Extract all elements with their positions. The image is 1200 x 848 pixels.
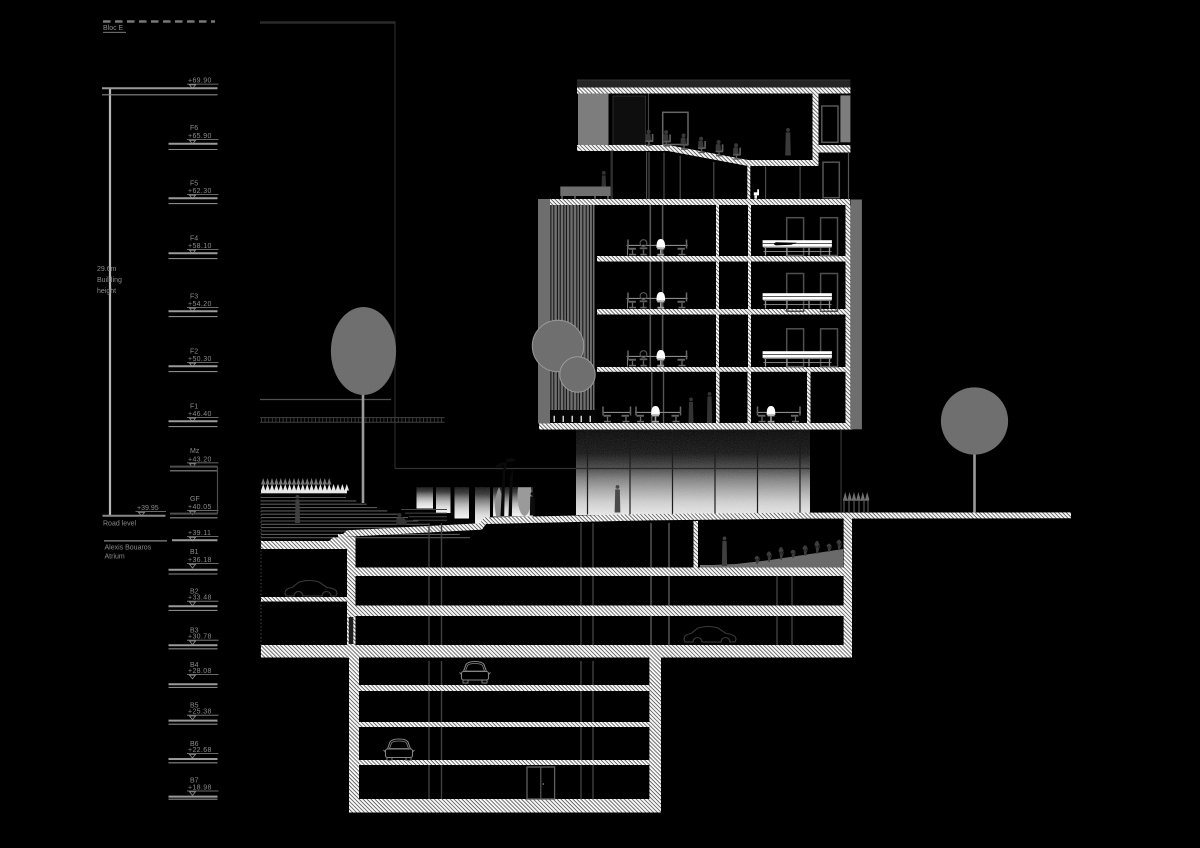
- svg-text:Alexis Bouaros: Alexis Bouaros: [105, 545, 152, 552]
- svg-text:F3: F3: [190, 293, 198, 300]
- svg-text:+46.40: +46.40: [188, 411, 212, 418]
- svg-text:Atrium: Atrium: [105, 554, 125, 561]
- svg-text:F1: F1: [190, 403, 198, 410]
- svg-text:+25.38: +25.38: [188, 709, 212, 716]
- svg-text:+40.05: +40.05: [188, 504, 212, 511]
- svg-text:+39.95: +39.95: [137, 505, 159, 512]
- svg-text:+62.30: +62.30: [188, 188, 212, 195]
- svg-text:GF: GF: [190, 496, 200, 503]
- svg-text:B1: B1: [190, 549, 199, 556]
- svg-text:F5: F5: [190, 180, 198, 187]
- svg-text:+36.18: +36.18: [188, 557, 212, 564]
- svg-text:+22.68: +22.68: [188, 747, 212, 754]
- svg-text:29.6m: 29.6m: [97, 266, 117, 273]
- svg-text:+58.10: +58.10: [188, 243, 212, 250]
- svg-text:+65.90: +65.90: [188, 133, 212, 140]
- svg-text:+54.20: +54.20: [188, 301, 212, 308]
- svg-text:Building: Building: [97, 277, 122, 284]
- svg-text:+30.78: +30.78: [188, 634, 212, 641]
- svg-text:Road level: Road level: [103, 521, 137, 528]
- svg-text:F4: F4: [190, 235, 198, 242]
- svg-text:Mz: Mz: [190, 448, 200, 455]
- svg-text:+43.20: +43.20: [188, 456, 212, 463]
- svg-text:+39.11: +39.11: [188, 530, 211, 537]
- svg-text:height: height: [97, 288, 116, 295]
- svg-text:+28.08: +28.08: [188, 668, 212, 675]
- svg-text:+33.48: +33.48: [188, 595, 212, 602]
- svg-text:F2: F2: [190, 348, 198, 355]
- svg-text:F6: F6: [190, 125, 198, 132]
- svg-text:Bloc E: Bloc E: [103, 25, 124, 32]
- svg-text:+69.90: +69.90: [188, 78, 212, 85]
- svg-text:+18.98: +18.98: [188, 784, 212, 791]
- svg-text:+50.30: +50.30: [188, 356, 212, 363]
